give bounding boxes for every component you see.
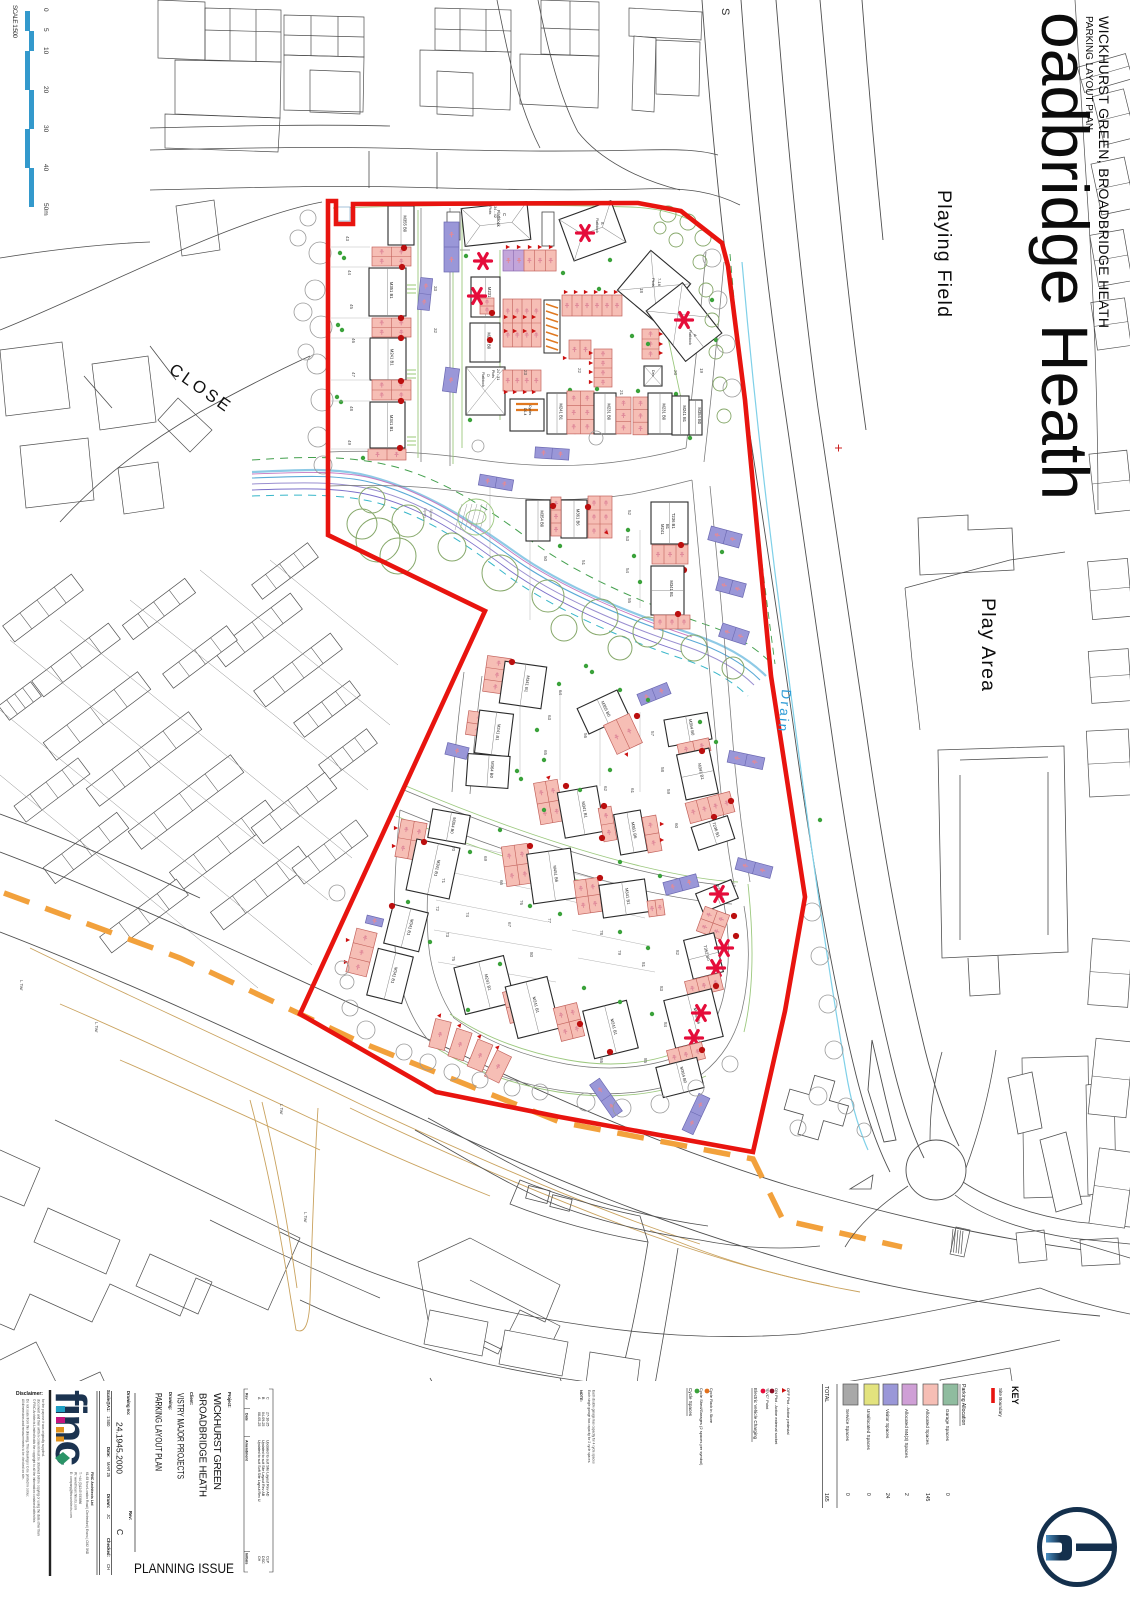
svg-text:59: 59 — [666, 789, 671, 795]
svg-text:M231 B0: M231 B0 — [662, 403, 667, 420]
svg-text:C: C — [115, 1529, 125, 1535]
svg-text:86: 86 — [599, 1058, 604, 1064]
svg-text:57: 57 — [650, 731, 655, 737]
svg-text:D: D — [486, 374, 490, 377]
svg-text:Each single garage has capacit: Each single garage has capacity for 2 cy… — [587, 1390, 591, 1463]
svg-text:M241 B1: M241 B1 — [390, 349, 395, 366]
svg-text:M354 B0: M354 B0 — [540, 510, 545, 527]
svg-text:46: 46 — [351, 338, 356, 344]
svg-text:Cycle Rack in Store: Cycle Rack in Store — [709, 1388, 714, 1424]
svg-text:M354 B0: M354 B0 — [697, 407, 702, 424]
svg-text:Scale@A1:: Scale@A1: — [106, 1390, 111, 1412]
svg-text:M341 B1: M341 B1 — [389, 415, 394, 432]
svg-text:CH: CH — [106, 1564, 111, 1570]
svg-text:"EVC" Point: "EVC" Point — [765, 1388, 770, 1410]
svg-text:24.1945.2000: 24.1945.2000 — [115, 1422, 125, 1474]
svg-text:Drawing:: Drawing: — [168, 1392, 173, 1410]
svg-text:78: 78 — [599, 930, 604, 936]
svg-text:70: 70 — [451, 846, 456, 852]
svg-text:Garage Spaces: Garage Spaces — [945, 1409, 950, 1442]
svg-text:D1-4: D1-4 — [523, 408, 527, 415]
svg-text:JC: JC — [106, 1514, 111, 1519]
svg-text:53: 53 — [625, 536, 630, 542]
svg-text:61-63 New London Road | Chelms: 61-63 New London Road | Chelmsford | Ess… — [85, 1472, 89, 1555]
svg-text:Date: Date — [245, 1413, 249, 1421]
svg-text:B1: B1 — [665, 524, 670, 530]
svg-text:10: 10 — [42, 47, 49, 55]
svg-text:20: 20 — [673, 370, 678, 376]
svg-text:Cycles: Cycles — [528, 405, 532, 415]
svg-text:CH: CH — [257, 1556, 261, 1562]
svg-text:M351 B1: M351 B1 — [389, 282, 394, 299]
svg-text:44: 44 — [347, 270, 352, 276]
svg-text:52: 52 — [627, 510, 632, 516]
svg-text:85: 85 — [643, 1058, 648, 1064]
svg-text:69: 69 — [483, 856, 488, 862]
svg-text:Electric Vehicle Charging: Electric Vehicle Charging — [753, 1388, 758, 1440]
svg-text:ON Plot - Active external sock: ON Plot - Active external socket — [774, 1388, 779, 1445]
svg-text:TOTAL: TOTAL — [823, 1386, 829, 1402]
svg-text:64: 64 — [558, 690, 563, 696]
svg-text:74: 74 — [465, 912, 470, 918]
svg-text:M355 B0: M355 B0 — [403, 215, 408, 232]
svg-text:Parking Allocation: Parking Allocation — [960, 1384, 966, 1425]
svg-text:WICKHURST GREEN, BROADBRIDGE H: WICKHURST GREEN, BROADBRIDGE HEATH — [1096, 16, 1112, 328]
svg-text:Disclaimer:: Disclaimer: — [16, 1391, 43, 1397]
svg-text:165: 165 — [823, 1493, 829, 1502]
svg-text:L Twr: L Twr — [19, 980, 24, 991]
svg-text:34 - 42: 34 - 42 — [493, 206, 497, 218]
svg-text:7-16: 7-16 — [657, 278, 662, 287]
svg-text:Flatblock: Flatblock — [595, 218, 599, 233]
svg-text:Drawing no:: Drawing no: — [126, 1391, 131, 1415]
svg-text:PARKING LAYOUT PLAN: PARKING LAYOUT PLAN — [153, 1393, 164, 1471]
svg-text:65: 65 — [543, 750, 548, 756]
svg-text:M341 B1: M341 B1 — [669, 580, 674, 597]
svg-text:71: 71 — [441, 878, 446, 884]
svg-text:40: 40 — [42, 164, 49, 172]
svg-text:21: 21 — [619, 390, 624, 396]
svg-text:PARKING LAYOUT PLAN: PARKING LAYOUT PLAN — [1083, 16, 1094, 130]
svg-text:22: 22 — [577, 368, 582, 374]
svg-text:80: 80 — [529, 952, 534, 958]
svg-text:document and their written con: document and their written consent must … — [37, 1399, 41, 1536]
svg-text:Cycle Spaces: Cycle Spaces — [688, 1388, 693, 1417]
svg-text:C: C — [502, 213, 507, 216]
svg-text:M361 B6: M361 B6 — [576, 509, 581, 526]
svg-text:0: 0 — [844, 1493, 850, 1496]
svg-text:Play Area: Play Area — [977, 598, 999, 691]
svg-text:Playing Field: Playing Field — [933, 190, 955, 317]
svg-text:33: 33 — [433, 286, 438, 292]
svg-text:77: 77 — [547, 918, 552, 924]
svg-text:S: S — [719, 8, 731, 15]
svg-text:WICKHURST GREEN: WICKHURST GREEN — [211, 1393, 223, 1490]
svg-text:0: 0 — [944, 1493, 950, 1496]
svg-text:BROADBRIDGE HEATH: BROADBRIDGE HEATH — [197, 1393, 209, 1497]
svg-text:Rev: Rev — [245, 1393, 249, 1400]
svg-text:83: 83 — [659, 986, 664, 992]
svg-text:67: 67 — [507, 922, 512, 928]
svg-text:Plots: Plots — [651, 278, 656, 287]
svg-text:60: 60 — [674, 823, 679, 829]
svg-text:Date:: Date: — [106, 1447, 111, 1457]
svg-text:20: 20 — [42, 86, 49, 94]
svg-text:32: 32 — [433, 328, 438, 334]
svg-text:T: +44 (0)1245 933886: T: +44 (0)1245 933886 — [78, 1472, 82, 1504]
svg-text:M241: M241 — [660, 524, 665, 535]
svg-text:W: www.fincarchitects.com: W: www.fincarchitects.com — [74, 1472, 78, 1510]
svg-text:Plots: Plots — [491, 370, 495, 378]
svg-text:08-05-25: 08-05-25 — [257, 1412, 261, 1426]
svg-text:55: 55 — [627, 598, 632, 604]
svg-text:Dec: Dec — [651, 370, 655, 377]
svg-text:Initials: Initials — [245, 1553, 249, 1564]
svg-text:45: 45 — [349, 304, 354, 310]
svg-text:M231 B0: M231 B0 — [607, 403, 612, 420]
svg-text:MAR 25: MAR 25 — [106, 1462, 111, 1478]
svg-text:Checked:: Checked: — [106, 1538, 111, 1557]
svg-text:Plots: Plots — [488, 206, 492, 215]
svg-text:30: 30 — [42, 125, 49, 133]
svg-text:84: 84 — [663, 1022, 668, 1028]
svg-text:NOTE:: NOTE: — [579, 1390, 583, 1402]
svg-text:63: 63 — [547, 715, 552, 721]
svg-text:T236 B1: T236 B1 — [671, 513, 676, 530]
svg-text:50: 50 — [543, 556, 548, 562]
svg-text:Service Spaces: Service Spaces — [845, 1409, 850, 1442]
svg-text:All dimensions and measurement: All dimensions and measurements to be ch… — [21, 1399, 25, 1480]
svg-text:VISTRY MAJOR PROJECTS: VISTRY MAJOR PROJECTS — [175, 1393, 186, 1479]
svg-text:Allocated Spaces: Allocated Spaces — [925, 1409, 930, 1445]
svg-text:61: 61 — [630, 788, 635, 794]
svg-text:43: 43 — [345, 236, 350, 242]
svg-text:24 - 31: 24 - 31 — [496, 369, 500, 380]
svg-text:Project:: Project: — [227, 1392, 232, 1408]
svg-text:M241 B1: M241 B1 — [682, 405, 687, 422]
svg-text:24: 24 — [884, 1493, 890, 1499]
svg-text:145: 145 — [924, 1493, 930, 1502]
svg-text:KEY: KEY — [1010, 1386, 1020, 1405]
svg-text:SCALE 1:500: SCALE 1:500 — [11, 5, 18, 38]
svg-text:75: 75 — [451, 956, 456, 962]
svg-text:58: 58 — [660, 767, 665, 773]
svg-text:Cycle Shed/Garages (2 spaces p: Cycle Shed/Garages (2 spaces per symbol) — [699, 1388, 704, 1466]
svg-text:5: 5 — [42, 28, 49, 32]
svg-text:Allocated M4(3) Spaces: Allocated M4(3) Spaces — [904, 1409, 909, 1458]
svg-text:49: 49 — [347, 440, 352, 446]
svg-text:Site Boundary: Site Boundary — [998, 1388, 1003, 1418]
svg-text:0: 0 — [42, 8, 49, 12]
svg-text:Space: Space — [429, 509, 434, 521]
svg-text:0: 0 — [865, 1493, 871, 1496]
svg-text:Flatblock: Flatblock — [481, 372, 485, 387]
svg-text:48: 48 — [349, 406, 354, 412]
svg-text:Each double garage has capacit: Each double garage has capacity for 4 cy… — [592, 1390, 596, 1464]
svg-text:Client:: Client: — [189, 1392, 194, 1405]
svg-text:L Twr: L Twr — [279, 1104, 284, 1115]
svg-text:79: 79 — [617, 950, 622, 956]
svg-text:50m: 50m — [42, 203, 49, 216]
svg-text:47: 47 — [351, 372, 356, 378]
svg-text:76: 76 — [519, 900, 524, 906]
svg-text:Amendment: Amendment — [245, 1440, 249, 1462]
svg-text:Visitor Spaces: Visitor Spaces — [885, 1409, 890, 1439]
svg-text:for the purpose it was origina: for the purpose it was originally suppli… — [41, 1399, 45, 1457]
svg-text:2: 2 — [903, 1493, 909, 1496]
svg-text:Do not scale from this drawing: Do not scale from this drawing. This dra… — [26, 1399, 30, 1497]
svg-text:Rev:: Rev: — [128, 1511, 133, 1520]
svg-text:finc: finc — [46, 1390, 95, 1466]
svg-text:FINC Architects Ltd: FINC Architects Ltd — [90, 1472, 94, 1505]
svg-text:66: 66 — [499, 880, 504, 886]
svg-text:81: 81 — [641, 962, 646, 968]
svg-text:62: 62 — [603, 786, 608, 792]
svg-text:19: 19 — [699, 368, 704, 374]
svg-text:73: 73 — [445, 932, 450, 938]
svg-text:© FINC Architects Limited hold: © FINC Architects Limited holds the copy… — [32, 1399, 36, 1523]
svg-text:Updated to suit Soft Site Layo: Updated to suit Soft Site Layout Rev U — [257, 1440, 261, 1502]
svg-text:L Twr: L Twr — [303, 1212, 308, 1223]
svg-text:Unallocated Spaces: Unallocated Spaces — [866, 1409, 871, 1451]
svg-text:E: company@fincarchitects.c: E: company@fincarchitects.com — [69, 1472, 73, 1518]
svg-text:23: 23 — [523, 370, 528, 376]
svg-text:M241 B1: M241 B1 — [559, 403, 564, 420]
svg-text:Open: Open — [423, 508, 428, 518]
svg-text:PLANNING ISSUE: PLANNING ISSUE — [134, 1561, 234, 1576]
svg-text:L Twr: L Twr — [94, 1022, 99, 1033]
svg-text:56: 56 — [583, 733, 588, 739]
svg-text:51: 51 — [581, 560, 586, 566]
svg-text:54: 54 — [625, 568, 630, 574]
svg-text:72: 72 — [435, 906, 440, 912]
svg-text:OFF Plot - Active pedestal: OFF Plot - Active pedestal — [786, 1388, 791, 1435]
svg-text:18: 18 — [639, 288, 644, 294]
svg-text:Flatblock: Flatblock — [688, 330, 692, 345]
svg-text:1:500: 1:500 — [106, 1416, 111, 1427]
svg-text:82: 82 — [675, 950, 680, 956]
svg-text:Drawn:: Drawn: — [106, 1494, 111, 1508]
